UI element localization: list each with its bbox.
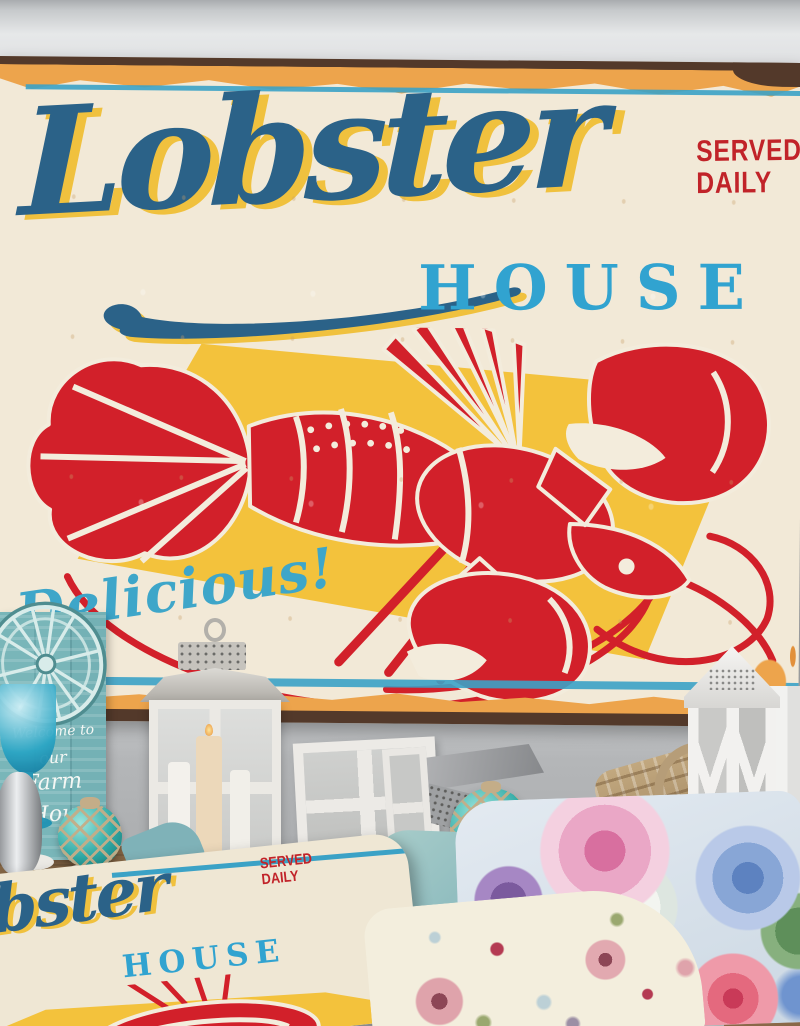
glass-float-small bbox=[58, 804, 122, 868]
distress-speckles bbox=[0, 96, 800, 703]
lantern-roof bbox=[140, 668, 290, 702]
candle bbox=[230, 770, 250, 858]
metal-lantern-vents bbox=[708, 668, 756, 690]
lobster-house-sign: Lobster SERVED DAILY HOUSE bbox=[0, 56, 800, 727]
teal-goblet bbox=[0, 684, 56, 774]
lantern-finial-ring bbox=[204, 618, 226, 642]
photo-scene: Lobster SERVED DAILY HOUSE bbox=[0, 0, 800, 1026]
silver-jug bbox=[0, 772, 42, 874]
lantern-vent-cap bbox=[178, 642, 246, 670]
